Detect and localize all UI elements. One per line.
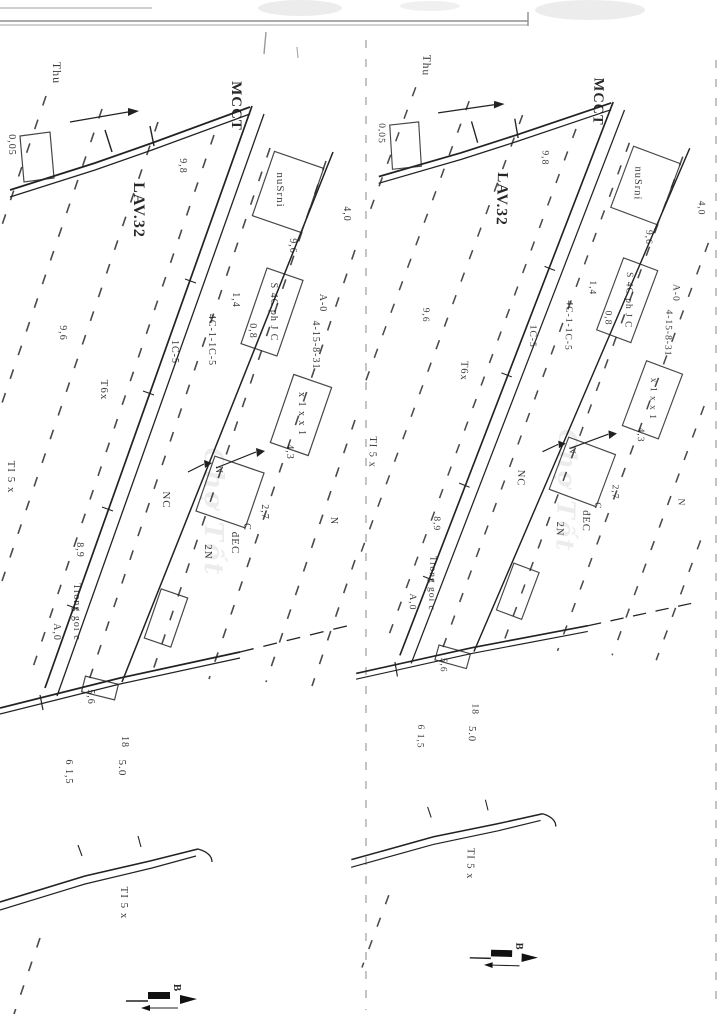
sketch-label: Thu — [50, 62, 64, 84]
sketch-label: 18 — [469, 703, 480, 715]
sketch-label: 0,05 — [6, 134, 17, 156]
sketch-label: đEC — [580, 510, 592, 532]
sketch-label: N — [675, 498, 686, 506]
sketch-label: 4C-1-1C-5 — [206, 314, 217, 366]
scanned-document: Chợ Tốt B ThuMCCTLAV.329,8nuSrni9,64,0S … — [0, 0, 720, 1024]
sketch-label: 4C-1-1C-5 — [562, 300, 574, 350]
parcel-strip-lines — [400, 97, 691, 670]
sketch-label: 1,4 — [230, 292, 241, 308]
sketch-label: TI 5 x — [118, 887, 130, 920]
sketch-label: 9,8 — [539, 150, 550, 165]
sketch-label: 6 1,5 — [63, 760, 74, 785]
dashed-hatch-lines — [350, 86, 712, 976]
sketch-label: nuSrni — [274, 172, 286, 207]
sketch-label: N — [566, 446, 577, 454]
sketch-label: Trong goi c — [426, 556, 438, 611]
sketch-label: đEC — [229, 532, 241, 555]
sketch-label: NC — [160, 491, 172, 508]
sketch-label: NC — [515, 470, 526, 487]
sketch-label: 18 — [119, 736, 130, 748]
north-arrow: B — [126, 984, 197, 1011]
sketch-label: 5.0 — [116, 760, 128, 777]
arrowhead-icon — [494, 101, 505, 109]
page-edge-marks — [366, 40, 716, 1010]
land-sketch-left: Chợ Tốt B ThuMCCTLAV.329,8nuSrni9,64,0S … — [0, 62, 355, 1014]
sketch-label: 8,9 — [74, 542, 85, 558]
sketch-label: 8,9 — [431, 516, 442, 531]
north-arrowhead-icon — [141, 1005, 150, 1011]
sketch-label: 5,6 — [85, 689, 96, 705]
sketch-label: Trong goi c — [71, 583, 82, 640]
sketch-label: 9,6 — [287, 238, 298, 254]
sketch-label: 5,6 — [438, 658, 449, 673]
sketch-label: 0,8 — [602, 310, 613, 325]
sketch-label: C — [592, 502, 603, 510]
sketch-label: 1,4 — [587, 280, 598, 295]
sketch-label: MCCT — [228, 81, 244, 131]
sketch-label: A,0 — [51, 623, 62, 641]
sketch-label: 2N — [554, 521, 565, 536]
sketch-label: 4,0 — [341, 206, 352, 222]
sketch-label: 4-15-8-31 — [662, 309, 674, 356]
sketch-label: A-0 — [670, 284, 681, 302]
sketch-label: C — [241, 523, 252, 531]
annotation-labels: ThuMCCTLAV.329,8nuSrni9,64,0S 4C ph J C4… — [356, 53, 711, 885]
scan-surface: Chợ Tốt B ThuMCCTLAV.329,8nuSrni9,64,0S … — [0, 0, 720, 1024]
sketch-label: x 1 x x 1 — [647, 378, 659, 420]
sketch-label: N — [328, 517, 339, 525]
sketch-label: 4,0 — [696, 201, 707, 216]
sketch-label: A,0 — [407, 593, 418, 610]
sketch-label: 9,8 — [177, 158, 188, 174]
sketch-label: 1C-5 — [527, 325, 539, 348]
annotation-labels: ThuMCCTLAV.329,8nuSrni9,64,0S 4C ph J C4… — [5, 62, 352, 920]
plot-box — [389, 121, 423, 170]
sketch-label: 4,3 — [635, 427, 646, 442]
north-arrow: B — [470, 941, 539, 969]
sketch-label: 0,05 — [376, 123, 388, 144]
plot-box — [20, 132, 54, 182]
dashed-hatch-lines — [2, 96, 355, 1014]
sketch-label: T6x — [98, 380, 110, 401]
sketch-label: A-0 — [317, 294, 328, 313]
sketch-label: 2N — [202, 544, 214, 559]
sketch-label: TI 5 x — [464, 848, 476, 880]
sketch-label: T6x — [458, 361, 470, 381]
sketch-label: S 4C ph J C — [268, 283, 279, 342]
sketch-label: LAV.32 — [130, 182, 147, 238]
sketch-label: Thu — [420, 55, 433, 77]
sketch-label: 9,6 — [643, 230, 654, 245]
land-sketch-right: Chợ Tốt B ThuMCCTLAV.329,8nuSrni9,64,0S … — [349, 53, 714, 976]
arrowhead-icon — [608, 430, 617, 439]
sketch-label: 2,7 — [609, 484, 620, 499]
sketch-label: TI 5 x — [5, 461, 17, 494]
sketch-label: LAV.32 — [493, 172, 511, 226]
top-boundary-line — [10, 107, 250, 197]
north-arrowhead-icon — [484, 962, 493, 968]
sketch-label: x 1 x x 1 — [296, 392, 307, 436]
scan-artifacts — [0, 0, 645, 58]
sketch-label: S 4C ph J C — [622, 272, 634, 329]
north-label: B — [513, 942, 524, 950]
north-arrowhead-icon — [522, 953, 539, 962]
sketch-label: MCCT — [589, 78, 606, 126]
sketch-label: TI 5 x — [366, 436, 378, 468]
parcel-strip-lines — [45, 106, 333, 696]
arrowhead-icon — [256, 448, 265, 457]
arrowhead-icon — [128, 108, 139, 116]
sketch-label: 4-15-8-31 — [310, 321, 321, 370]
north-arrowhead-icon — [180, 995, 197, 1004]
sketch-label: 1C-5 — [169, 340, 180, 364]
sketch-label: N — [213, 466, 224, 474]
bottom-road-lines — [0, 836, 212, 910]
sketch-label: 0,8 — [247, 323, 258, 339]
sketch-label: 4,3 — [284, 444, 295, 460]
north-label: B — [171, 984, 183, 992]
sketch-label: 6 1,5 — [415, 724, 427, 748]
sketch-label: 5.0 — [466, 726, 477, 742]
sketch-label: 2,7 — [259, 504, 270, 520]
sketch-label: 9,6 — [420, 308, 431, 323]
bottom-road-lines — [351, 796, 556, 872]
sketch-label: nuSrni — [632, 166, 644, 200]
sketch-label: 9,6 — [57, 325, 68, 341]
